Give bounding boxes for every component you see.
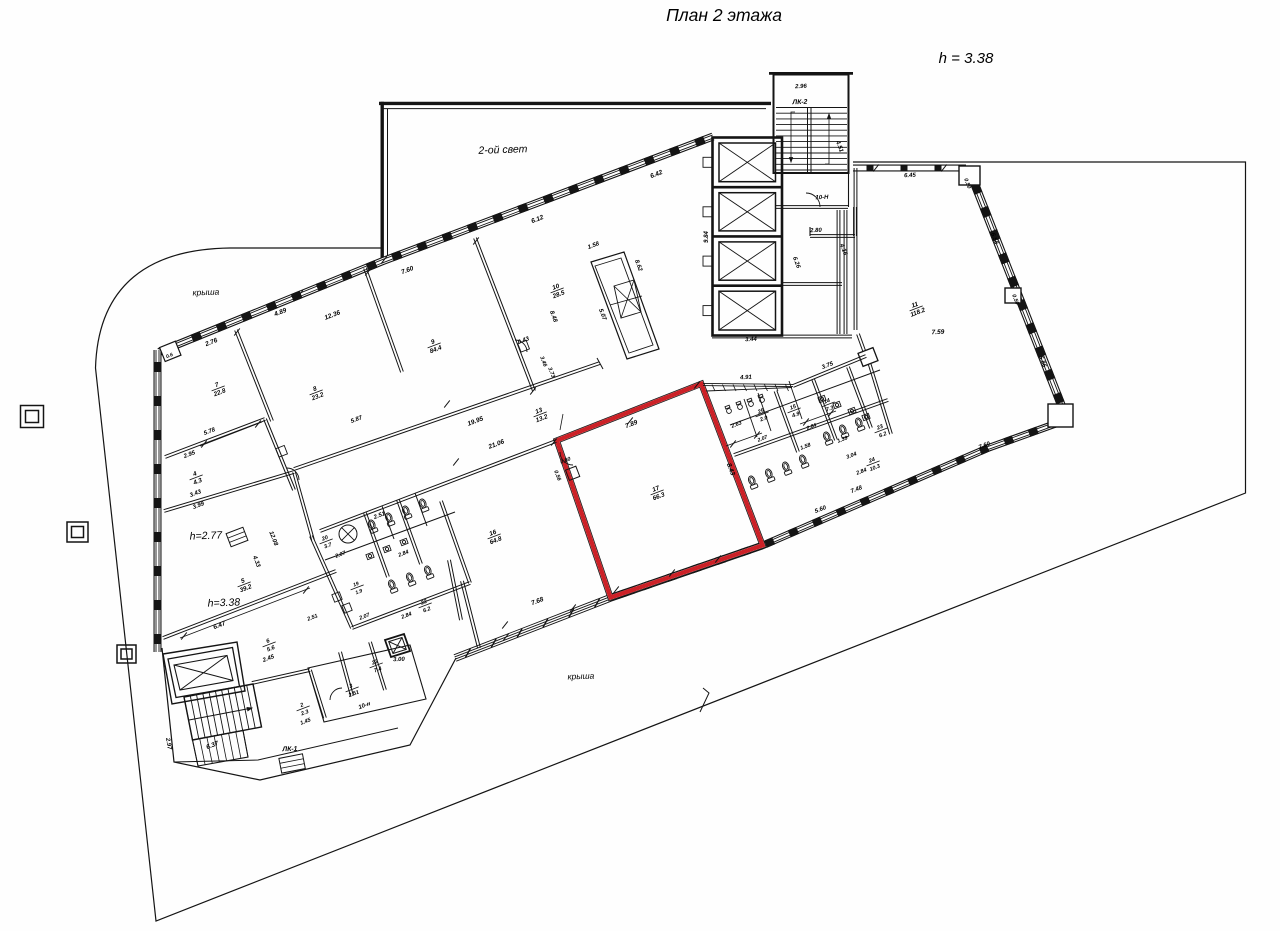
- svg-text:7.59: 7.59: [932, 329, 945, 336]
- svg-text:h = 3.38: h = 3.38: [939, 50, 994, 67]
- svg-text:ЛК-1: ЛК-1: [281, 746, 297, 754]
- svg-text:2.80: 2.80: [809, 228, 823, 234]
- svg-text:9.84: 9.84: [704, 231, 710, 243]
- svg-text:4.91: 4.91: [739, 375, 753, 381]
- svg-text:ЛК-2: ЛК-2: [791, 99, 807, 107]
- svg-text:h=2.77: h=2.77: [189, 529, 223, 542]
- svg-text:3.00: 3.00: [393, 657, 406, 663]
- svg-text:крыша: крыша: [192, 287, 219, 298]
- svg-text:крыша: крыша: [567, 671, 594, 682]
- svg-text:10-Н: 10-Н: [815, 195, 829, 201]
- svg-text:План 2 этажа: План 2 этажа: [666, 5, 782, 25]
- svg-text:2-ой свет: 2-ой свет: [477, 143, 528, 157]
- svg-text:2.96: 2.96: [794, 84, 808, 90]
- svg-text:h=3.38: h=3.38: [207, 596, 240, 609]
- svg-text:6.45: 6.45: [904, 173, 917, 179]
